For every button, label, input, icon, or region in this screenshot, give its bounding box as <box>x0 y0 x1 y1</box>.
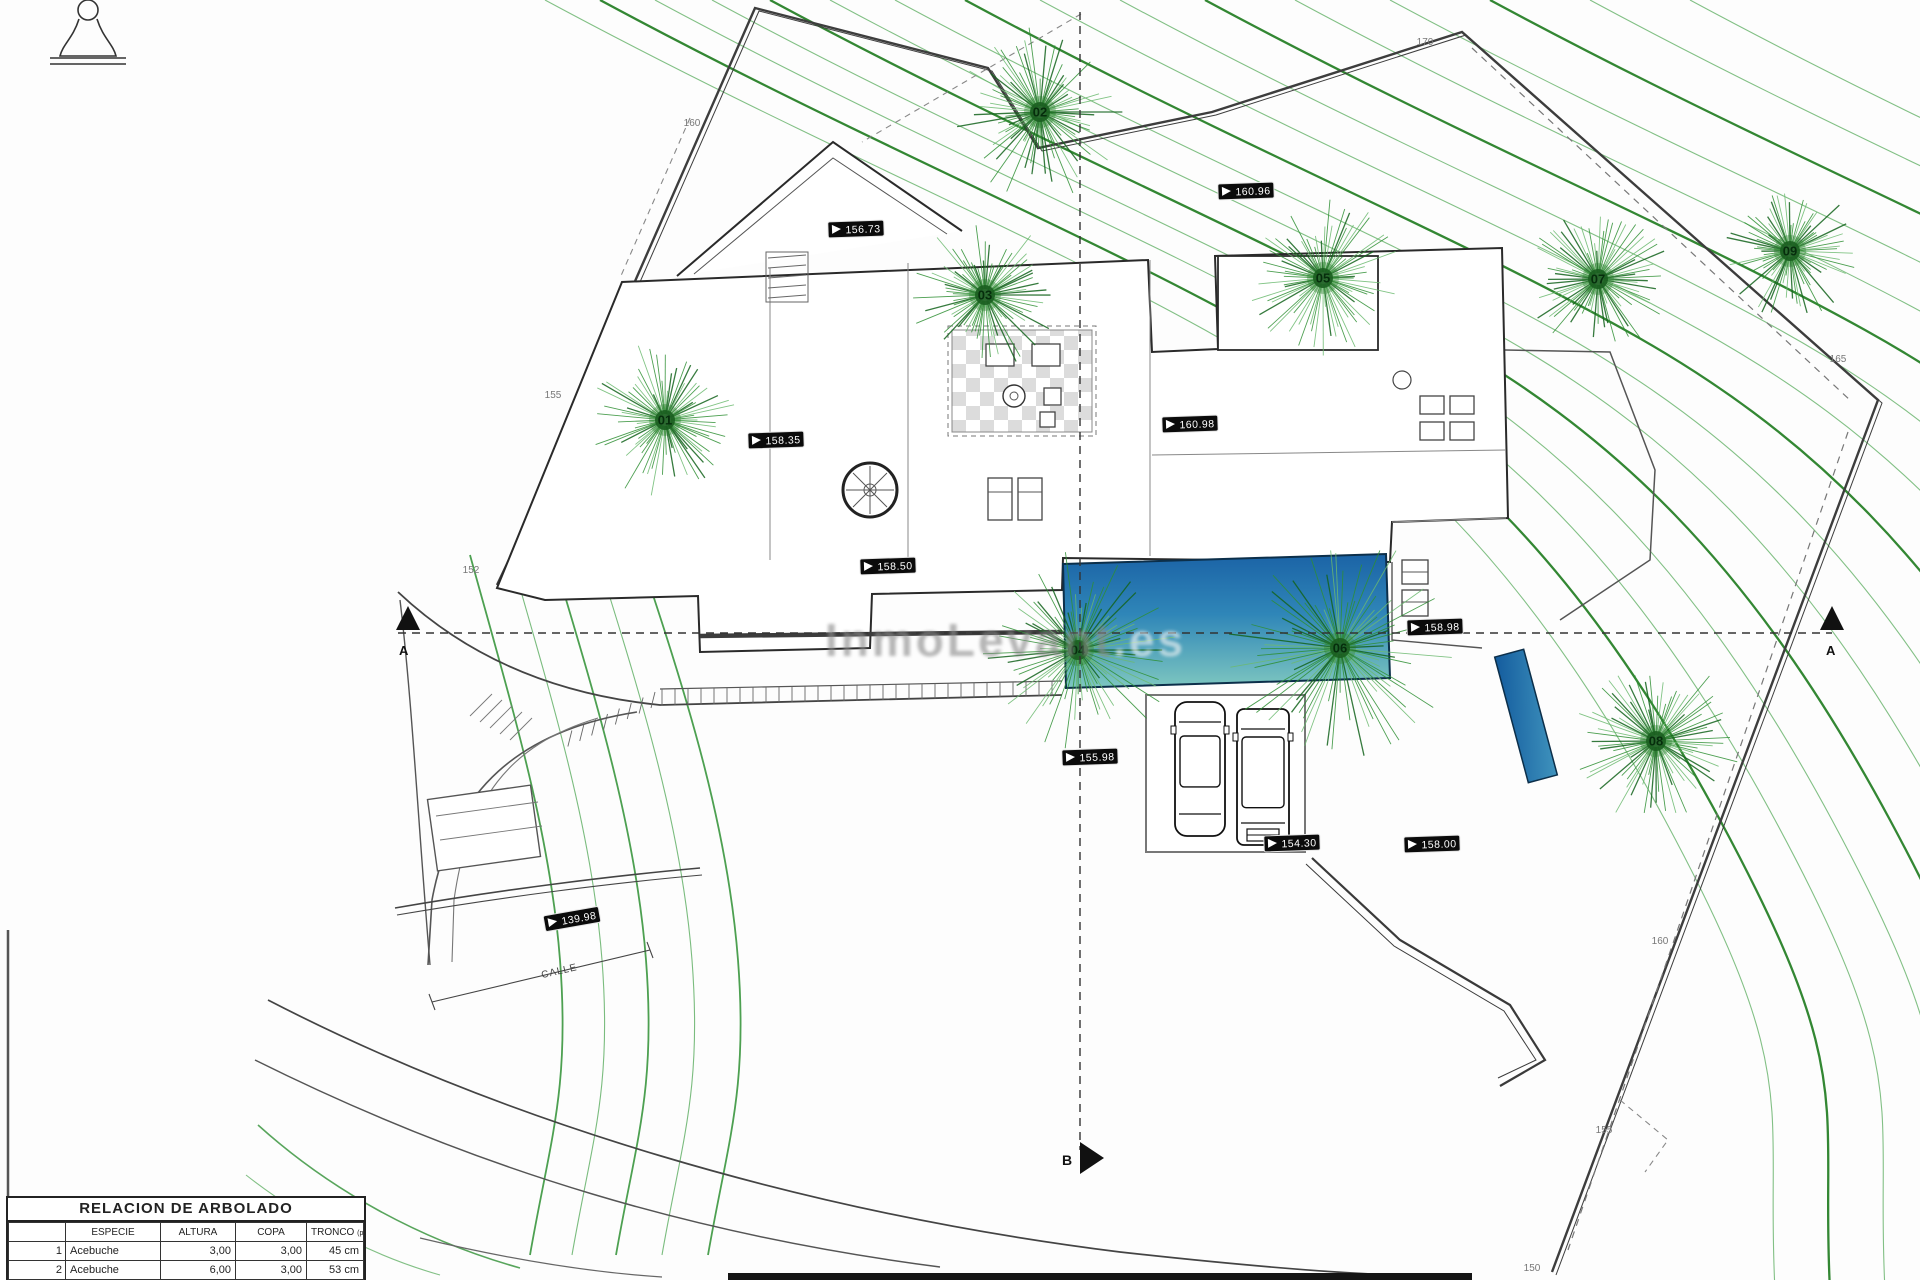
spot-elevation: 156.73 <box>828 220 885 238</box>
deck-chair <box>1018 478 1042 520</box>
spot-elevation: 158.50 <box>860 557 917 575</box>
contour-line <box>1590 0 1920 1280</box>
tree-branch <box>1602 688 1652 737</box>
contour-line <box>1390 0 1920 1280</box>
spot-elevation: 158.35 <box>748 431 805 449</box>
road-line <box>420 1238 662 1277</box>
section-marker-a-right-icon <box>1820 606 1844 630</box>
road-line <box>627 703 631 719</box>
contour-label: 150 <box>1524 1263 1541 1274</box>
spot-elevation-value: 158.35 <box>765 434 801 447</box>
road-line <box>660 681 1062 689</box>
tree-number: 07 <box>1591 272 1605 287</box>
car-part <box>1233 733 1238 741</box>
table-title: RELACION DE ARBOLADO <box>8 1198 364 1222</box>
tree-09: 09 <box>1727 194 1854 313</box>
watermark-left: InmoLevant <box>825 614 1113 666</box>
spot-elevation: 160.96 <box>1218 182 1275 200</box>
car-part <box>1171 726 1176 734</box>
tree-02: 02 <box>957 28 1122 193</box>
tree-branch <box>1261 648 1334 649</box>
section-marker-a-right-label: A <box>1826 643 1836 658</box>
tree-number: 02 <box>1033 105 1047 120</box>
tree-branch <box>1616 746 1653 812</box>
armchair <box>1450 396 1474 414</box>
stair-landing <box>427 785 540 871</box>
tree-08: 08 <box>1579 675 1737 813</box>
road-line <box>651 692 655 708</box>
contour-line <box>648 580 741 1255</box>
tree-number: 08 <box>1649 734 1663 749</box>
chair <box>1044 388 1061 405</box>
tree-branch <box>1590 744 1651 773</box>
north-symbol-icon <box>50 0 126 64</box>
table-row: 1Acebuche3,003,0045 cm <box>9 1242 364 1261</box>
sofa <box>1032 344 1060 366</box>
contour-line <box>470 555 563 1255</box>
armchair <box>1420 422 1444 440</box>
contour-label: 170 <box>1417 37 1434 48</box>
section-marker-b-label: B <box>1062 1152 1072 1168</box>
road-line <box>268 1000 1470 1277</box>
tree-number: 06 <box>1333 641 1347 656</box>
tree-schedule-table: RELACION DE ARBOLADO ESPECIE ALTURA COPA… <box>6 1196 366 1280</box>
round-table <box>1003 385 1025 407</box>
tree-number: 01 <box>658 413 672 428</box>
lap-pool <box>1495 649 1558 782</box>
tree-07: 07 <box>1538 217 1665 342</box>
road-line <box>604 714 608 730</box>
spot-elevation: 158.98 <box>1407 618 1464 636</box>
spot-elevation-value: 158.00 <box>1421 838 1457 851</box>
tree-number: 09 <box>1783 244 1797 259</box>
tree-number: 05 <box>1316 271 1330 286</box>
contour-label: 155 <box>1596 1125 1613 1136</box>
road-line <box>580 725 584 741</box>
paved-terrace <box>952 330 1092 432</box>
section-marker-a-left-icon <box>396 606 420 630</box>
spot-elevation: 160.98 <box>1162 415 1219 433</box>
spot-elevation-value: 158.98 <box>1424 621 1460 634</box>
col-altura: ALTURA <box>161 1223 236 1242</box>
car-sedan <box>1171 702 1229 836</box>
aux-dashed <box>1620 1100 1668 1172</box>
road-line <box>397 875 702 915</box>
tree-branch <box>1046 96 1112 110</box>
section-marker-b-icon <box>1080 1142 1104 1174</box>
car-part <box>1288 733 1293 741</box>
side-table <box>1393 371 1411 389</box>
armchair <box>1450 422 1474 440</box>
armchair <box>1420 396 1444 414</box>
spot-elevation: 158.00 <box>1404 835 1461 853</box>
spot-elevation-value: 160.98 <box>1179 418 1215 431</box>
road-line <box>395 868 700 908</box>
contour-label: 160 <box>684 118 701 129</box>
site-plan-drawing: 010203040506070809 AAB 156.73160.96158.3… <box>0 0 1920 1280</box>
boundary-offset-dashed <box>1472 48 1852 402</box>
col-tronco: TRONCO (perimetro) <box>307 1223 364 1242</box>
contour-line <box>1490 0 1920 1280</box>
sheet-border-bottom <box>728 1273 1472 1280</box>
car-van <box>1233 709 1293 845</box>
site-plan-page: 010203040506070809 AAB 156.73160.96158.3… <box>0 0 1920 1280</box>
interior-wall <box>768 265 806 268</box>
tree-branch <box>1579 714 1650 739</box>
road-line <box>1306 864 1536 1078</box>
road-line <box>568 731 572 747</box>
contour-line <box>1690 0 1920 1280</box>
table-header-row: ESPECIE ALTURA COPA TRONCO (perimetro) <box>9 1223 364 1242</box>
contour-label: 160 <box>1652 936 1669 947</box>
contour-label: 152 <box>463 565 480 576</box>
road-line <box>1312 858 1545 1086</box>
tree-number: 03 <box>978 288 992 303</box>
contour-label: 155 <box>545 390 562 401</box>
spot-elevation-value: 155.98 <box>1079 751 1115 764</box>
spot-elevation-value: 154.30 <box>1281 837 1317 850</box>
col-especie: ESPECIE <box>66 1223 161 1242</box>
chair <box>1040 412 1055 427</box>
tree-branch <box>1660 676 1710 736</box>
deck-chair <box>988 478 1012 520</box>
car-part <box>1224 726 1229 734</box>
watermark-right: .es <box>1113 614 1186 666</box>
table-row: 2Acebuche6,003,0053 cm <box>9 1261 364 1280</box>
contour-line <box>556 566 649 1255</box>
spot-elevation: 155.98 <box>1062 748 1119 766</box>
spot-elevation: 154.30 <box>1264 834 1321 852</box>
spot-elevation-value: 160.96 <box>1235 185 1271 198</box>
col-copa: COPA <box>236 1223 307 1242</box>
col-num <box>9 1223 66 1242</box>
street-label: CALLE <box>540 962 578 981</box>
spot-elevation-value: 156.73 <box>845 223 881 236</box>
watermark-text: InmoLevant.es <box>825 614 1186 666</box>
section-marker-a-left-label: A <box>399 643 409 658</box>
triangle-wing <box>677 142 962 276</box>
lounger <box>1402 590 1428 616</box>
spot-elevation-value: 158.50 <box>877 560 913 573</box>
pool-layer <box>1063 554 1557 783</box>
contour-label: 165 <box>1830 354 1847 365</box>
aux-dashed <box>620 118 690 278</box>
spot-elevation: 139.98 <box>543 906 601 931</box>
